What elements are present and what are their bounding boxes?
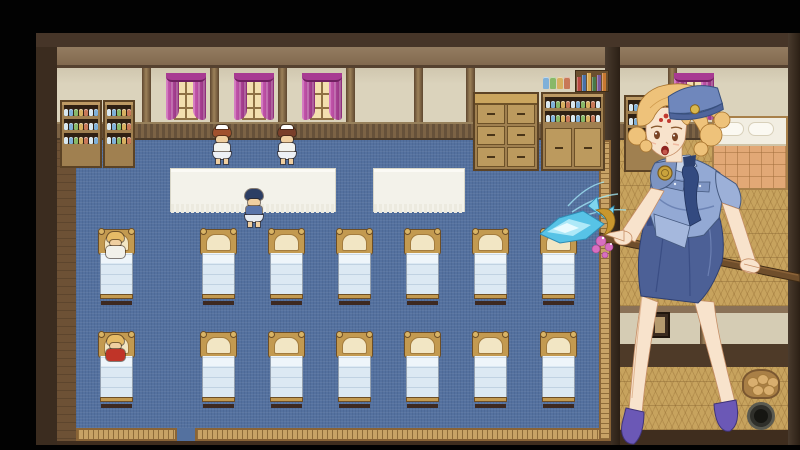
jar-icon [127, 137, 131, 144]
bed[interactable] [472, 332, 509, 408]
bed-mat [407, 301, 438, 305]
bed[interactable] [472, 229, 509, 305]
bed-footboard [202, 294, 235, 299]
character-nurse-2[interactable] [276, 126, 298, 164]
bed-sheet [338, 356, 371, 398]
bed[interactable] [336, 229, 373, 305]
wall-divider [346, 68, 355, 122]
wall-divider [210, 68, 219, 122]
bed-sheet [406, 356, 439, 398]
bed-footboard [100, 397, 133, 402]
jar-icon [64, 123, 68, 130]
curtain-valance [302, 73, 342, 82]
bed-headboard [268, 229, 305, 255]
bed-sheet [270, 253, 303, 295]
jar-icon [74, 137, 78, 144]
bed-headboard [404, 332, 441, 358]
window-with-curtains [234, 73, 274, 122]
bed-mat [475, 301, 506, 305]
jar-icon [84, 137, 88, 144]
bed[interactable] [336, 332, 373, 408]
bed-headboard [404, 229, 441, 255]
letterbox-bottom [0, 445, 800, 450]
character-patient-in-bed-red[interactable] [102, 335, 130, 363]
medicine-cabinet-left-2 [103, 100, 135, 168]
wall-divider [414, 68, 423, 122]
character-patient-in-bed-white[interactable] [102, 232, 130, 260]
bed-headboard [472, 332, 509, 358]
jar-icon [117, 137, 121, 144]
wood-floor-left [57, 140, 76, 447]
character-officer[interactable] [243, 189, 265, 227]
wall-divider [278, 68, 287, 122]
jar-icon [107, 123, 111, 130]
bed[interactable] [268, 332, 305, 408]
bed-footboard [100, 294, 133, 299]
jar-icon [84, 109, 88, 116]
curtain-valance [234, 73, 274, 82]
bed-footboard [406, 294, 439, 299]
bed-headboard [472, 229, 509, 255]
jar-icon [84, 123, 88, 130]
bed-sheet [338, 253, 371, 295]
bed-mat [339, 404, 370, 408]
character-nurse-1[interactable] [211, 126, 233, 164]
bed-mat [203, 301, 234, 305]
bed-headboard [268, 332, 305, 358]
bed-footboard [338, 294, 371, 299]
bed-sheet [202, 356, 235, 398]
ice-spear-head [540, 182, 626, 258]
bed-mat [203, 404, 234, 408]
medicine-cabinet-left-1 [60, 100, 102, 168]
dresser [473, 92, 539, 171]
bed[interactable] [404, 332, 441, 408]
bed-footboard [474, 397, 507, 402]
bed-footboard [270, 294, 303, 299]
jar-icon [74, 109, 78, 116]
bed-footboard [270, 397, 303, 402]
jar-icon [69, 123, 73, 130]
bed-sheet [270, 356, 303, 398]
jar-icon [79, 137, 83, 144]
bed-footboard [406, 397, 439, 402]
game-viewport[interactable] [0, 0, 800, 450]
jar-icon [69, 109, 73, 116]
window-with-curtains [302, 73, 342, 122]
jar-icon [112, 109, 116, 116]
jar-icon [112, 137, 116, 144]
bed-mat [339, 301, 370, 305]
jar-icon [64, 109, 68, 116]
outer-wall-top [36, 33, 800, 47]
jar-icon [89, 109, 93, 116]
window-with-curtains [166, 73, 206, 122]
jar-icon [127, 109, 131, 116]
wall-divider [142, 68, 151, 122]
bed-mat [407, 404, 438, 408]
bed[interactable] [268, 229, 305, 305]
bed-headboard [200, 332, 237, 358]
jar-icon [79, 109, 83, 116]
bed-headboard [336, 332, 373, 358]
jar-icon [89, 137, 93, 144]
policewoman-portrait[interactable] [538, 78, 800, 450]
curtain-valance [166, 73, 206, 82]
jar-icon [69, 137, 73, 144]
jar-icon [117, 123, 121, 130]
jar-icon [127, 123, 131, 130]
jar-icon [107, 137, 111, 144]
bed[interactable] [404, 229, 441, 305]
bed-sheet [406, 253, 439, 295]
bed-footboard [338, 397, 371, 402]
bed-headboard [200, 229, 237, 255]
bed-footboard [474, 294, 507, 299]
jar-icon [122, 123, 126, 130]
wall-top-face [57, 47, 788, 68]
bed-headboard [336, 229, 373, 255]
jar-icon [74, 123, 78, 130]
jar-icon [107, 109, 111, 116]
bed-sheet [474, 253, 507, 295]
white-table [373, 168, 465, 212]
bed-footboard [202, 397, 235, 402]
jar-icon [89, 123, 93, 130]
bed-mat [101, 404, 132, 408]
bed-sheet [202, 253, 235, 295]
table-fringe [374, 204, 464, 213]
jar-icon [122, 137, 126, 144]
bed-mat [475, 404, 506, 408]
bed[interactable] [200, 332, 237, 408]
jar-icon [94, 137, 98, 144]
bed-mat [271, 404, 302, 408]
bed-mat [101, 301, 132, 305]
jar-icon [64, 137, 68, 144]
bed-sheet [474, 356, 507, 398]
jar-icon [94, 123, 98, 130]
letterbox-left [0, 0, 36, 450]
jar-icon [79, 123, 83, 130]
portrait-legs [629, 296, 735, 414]
carpet-border-bottom-left [76, 428, 177, 441]
bed-mat [271, 301, 302, 305]
bed[interactable] [200, 229, 237, 305]
jar-icon [112, 123, 116, 130]
jar-icon [117, 109, 121, 116]
jar-icon [122, 109, 126, 116]
letterbox-top [0, 0, 800, 33]
jar-icon [94, 109, 98, 116]
